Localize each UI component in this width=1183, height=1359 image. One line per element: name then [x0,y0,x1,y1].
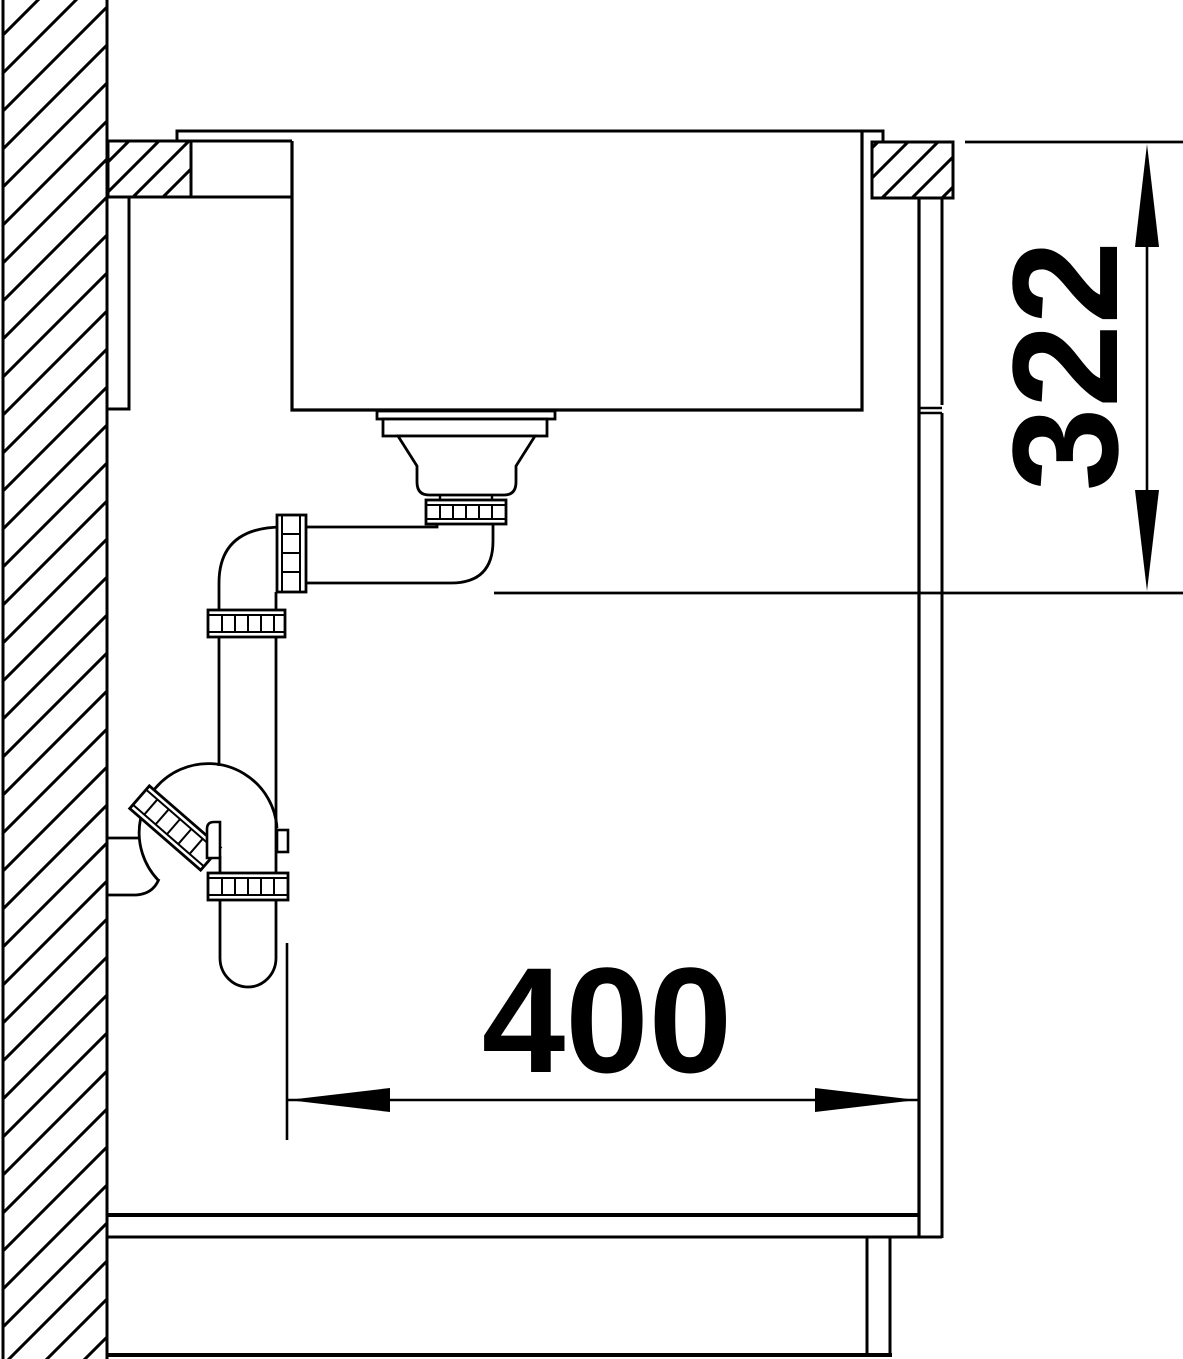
pipe-union-nut-upper [208,610,285,637]
sink-installation-diagram [0,0,1183,1359]
drain-strainer-assembly [377,411,555,524]
sink-basin [292,132,862,410]
arrow-right-icon [815,1088,917,1112]
drain-locknut [426,500,506,524]
vertical-dimension-label: 322 [990,241,1140,491]
technical-drawing-canvas: 322 400 [0,0,1183,1359]
elbow-union-nut [277,515,306,592]
wall-section [3,0,107,1359]
arrow-down-icon [1135,490,1159,591]
arrow-left-icon [288,1088,390,1112]
arrow-up-icon [1135,144,1159,247]
plinth-panel [867,1238,890,1355]
countertop-left [108,141,292,197]
cabinet-side-panel [919,198,942,1238]
trap-tube-bottom [220,958,276,987]
trap-piping [107,524,493,987]
countertop-right [872,142,953,198]
cabinet-bottom-shelf [107,1215,942,1237]
pipe-union-nut-lower [208,873,288,900]
horizontal-dimension-label: 400 [482,945,732,1095]
wall-outlet-bottom [107,879,159,895]
cabinet-back-panel [107,197,129,409]
